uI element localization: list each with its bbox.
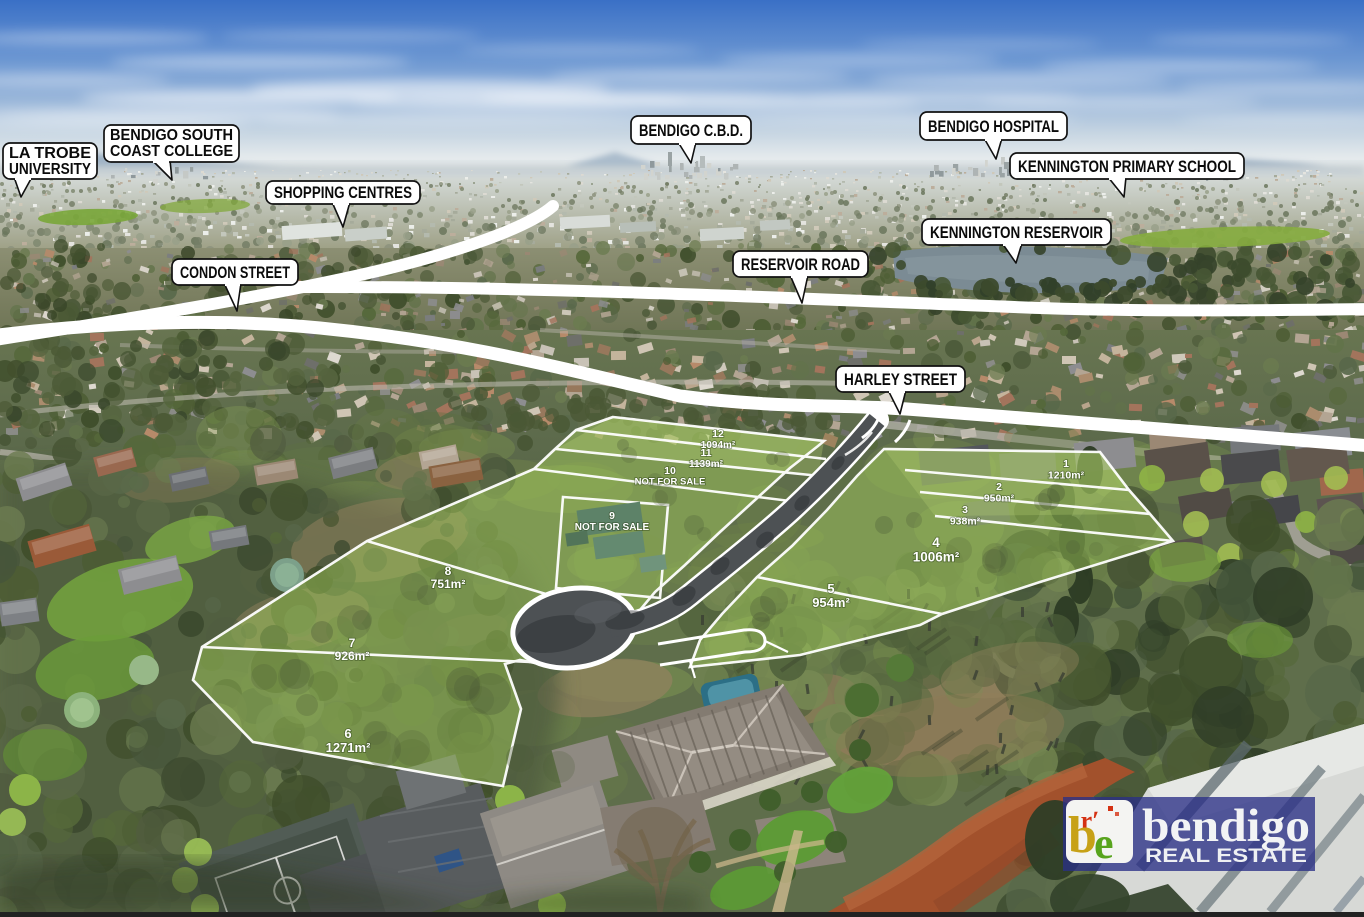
svg-text:KENNINGTON RESERVOIR: KENNINGTON RESERVOIR: [930, 223, 1103, 242]
svg-text:2: 2: [996, 481, 1002, 493]
svg-text:SHOPPING CENTRES: SHOPPING CENTRES: [274, 183, 412, 202]
svg-text:8: 8: [445, 564, 452, 578]
svg-text:926m²: 926m²: [335, 649, 370, 663]
svg-text:10: 10: [664, 465, 676, 477]
svg-text:BENDIGO C.B.D.: BENDIGO C.B.D.: [639, 121, 743, 140]
svg-text:e: e: [1094, 819, 1114, 868]
svg-text:CONDON STREET: CONDON STREET: [180, 263, 290, 282]
svg-text:6: 6: [344, 726, 351, 741]
svg-text:9: 9: [609, 510, 615, 522]
svg-text:1271m²: 1271m²: [326, 740, 371, 755]
svg-text:KENNINGTON PRIMARY SCHOOL: KENNINGTON PRIMARY SCHOOL: [1018, 157, 1236, 176]
svg-text:938m²: 938m²: [950, 516, 981, 528]
svg-text:REAL ESTATE: REAL ESTATE: [1145, 846, 1307, 867]
svg-text:b: b: [1068, 807, 1097, 864]
svg-text:UNIVERSITY: UNIVERSITY: [9, 161, 92, 178]
svg-text:954m²: 954m²: [812, 595, 850, 610]
svg-text:RESERVOIR ROAD: RESERVOIR ROAD: [741, 255, 860, 274]
svg-text:7: 7: [349, 636, 356, 650]
svg-text:NOT FOR SALE: NOT FOR SALE: [635, 477, 706, 488]
svg-text:NOT FOR SALE: NOT FOR SALE: [575, 522, 650, 533]
svg-text:1006m²: 1006m²: [913, 550, 960, 565]
svg-text:1210m²: 1210m²: [1048, 470, 1085, 482]
svg-text:12: 12: [712, 428, 724, 440]
svg-text:1: 1: [1063, 458, 1069, 470]
svg-text:1139m²: 1139m²: [689, 459, 724, 470]
svg-text:11: 11: [700, 447, 711, 459]
svg-text:950m²: 950m²: [984, 493, 1015, 505]
svg-text:751m²: 751m²: [431, 577, 466, 591]
svg-text:4: 4: [932, 535, 940, 550]
svg-text:3: 3: [962, 504, 968, 516]
svg-text:BENDIGO HOSPITAL: BENDIGO HOSPITAL: [928, 117, 1059, 136]
svg-text:bendigo: bendigo: [1142, 800, 1310, 852]
svg-text:5: 5: [827, 581, 834, 596]
svg-text:LA TROBE: LA TROBE: [9, 145, 91, 162]
svg-text:HARLEY STREET: HARLEY STREET: [844, 370, 957, 389]
svg-text:BENDIGO SOUTH: BENDIGO SOUTH: [110, 127, 233, 144]
svg-text:COAST COLLEGE: COAST COLLEGE: [110, 143, 233, 160]
